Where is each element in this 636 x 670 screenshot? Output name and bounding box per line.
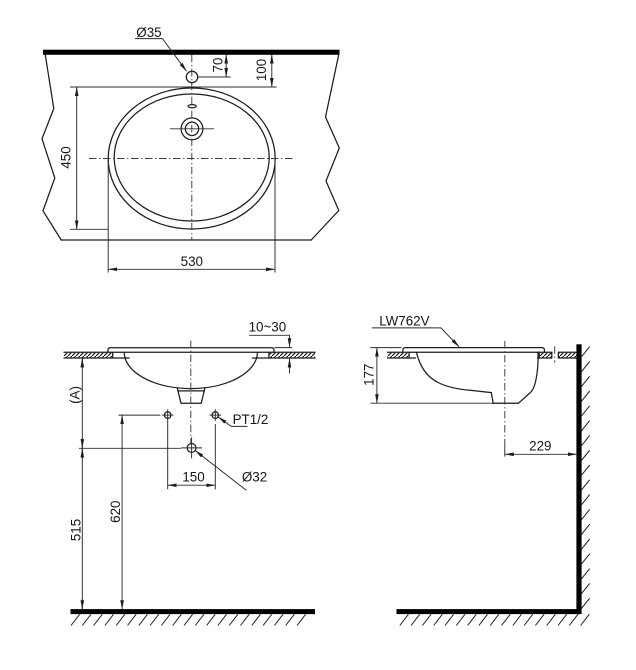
svg-text:Ø35: Ø35 <box>136 25 161 40</box>
svg-text:530: 530 <box>181 254 203 269</box>
svg-text:229: 229 <box>529 439 551 454</box>
svg-text:LW762V: LW762V <box>379 314 429 329</box>
svg-text:100: 100 <box>254 59 269 81</box>
svg-text:PT1/2: PT1/2 <box>233 412 269 427</box>
svg-text:150: 150 <box>182 470 204 485</box>
svg-text:177: 177 <box>361 364 376 386</box>
svg-text:10~30: 10~30 <box>249 319 287 334</box>
svg-text:70: 70 <box>210 58 225 73</box>
svg-text:Ø32: Ø32 <box>242 470 267 485</box>
svg-text:450: 450 <box>58 146 73 168</box>
svg-text:515: 515 <box>69 519 84 541</box>
svg-text:(A): (A) <box>67 386 82 404</box>
svg-text:620: 620 <box>108 501 123 523</box>
